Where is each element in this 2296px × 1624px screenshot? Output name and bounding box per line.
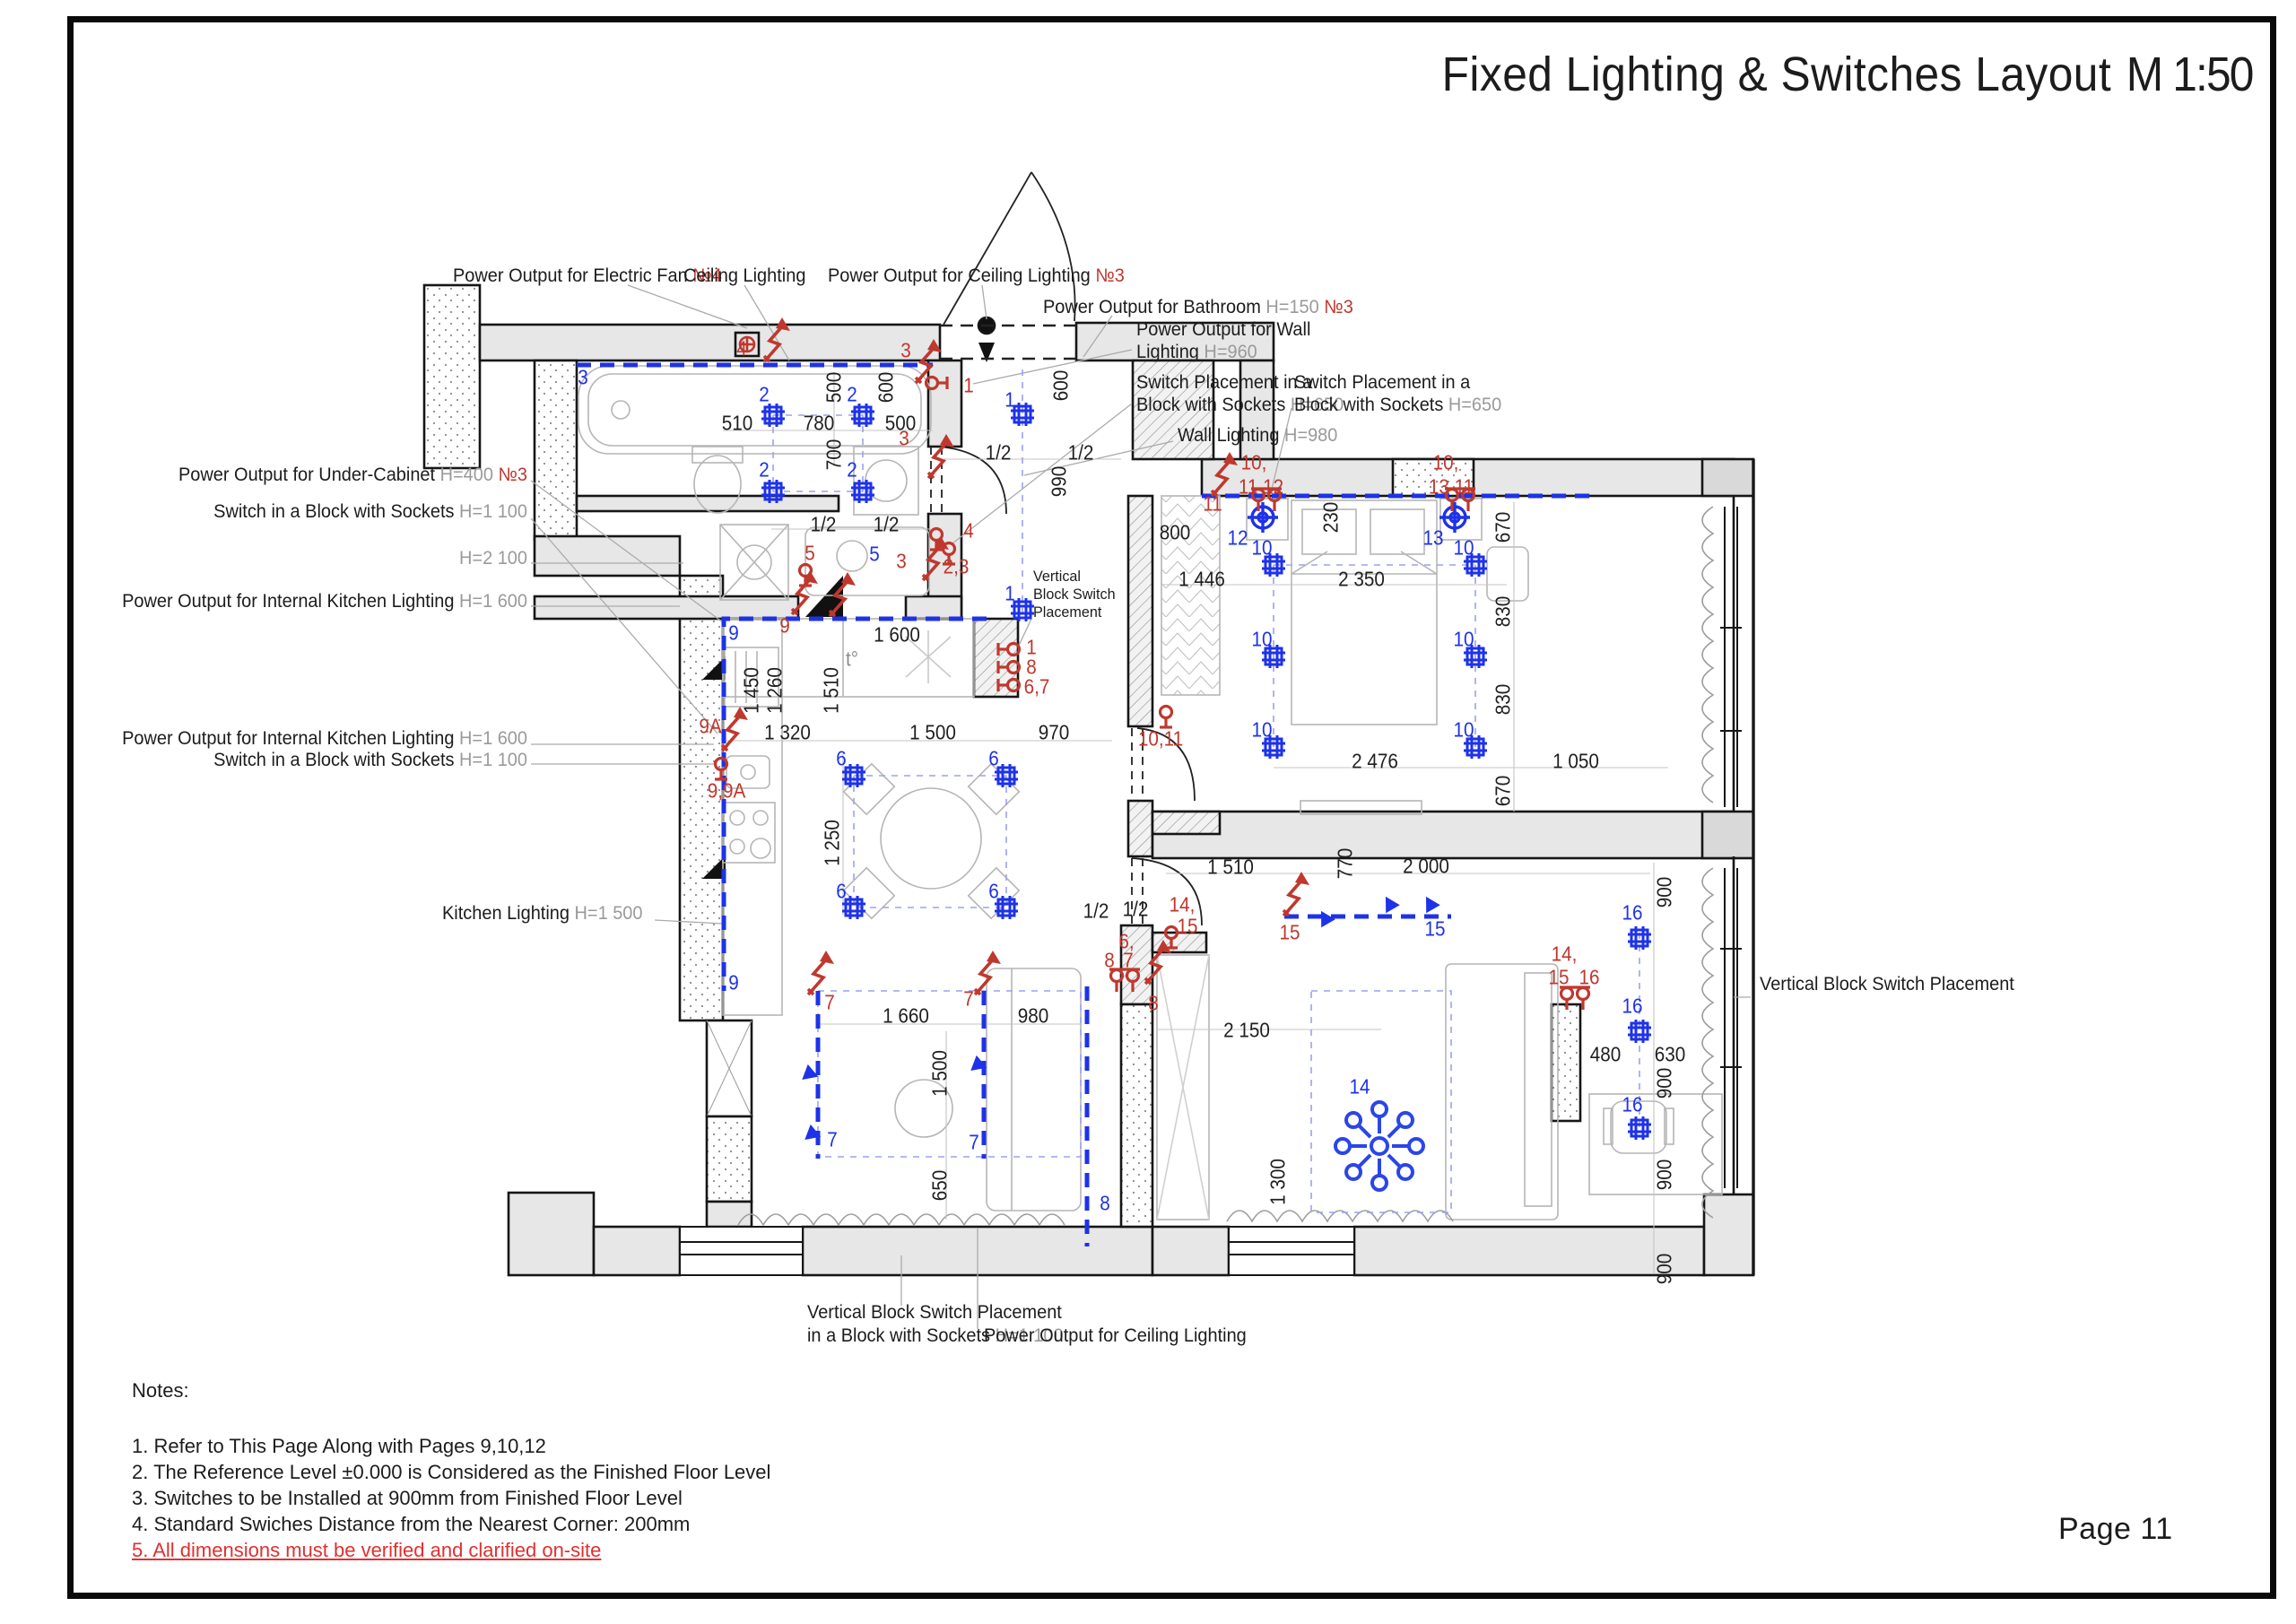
ceiling-light-icon [995, 896, 1018, 919]
note-item-3: 3. Switches to be Installed at 900mm fro… [132, 1485, 1011, 1511]
led-direction-icon [796, 1064, 818, 1086]
led-direction-icon [1419, 892, 1440, 913]
power-output-icon [808, 951, 834, 994]
notes-heading: Notes: [132, 1379, 1011, 1403]
note-item-5: 5. All dimensions must be verified and c… [132, 1537, 1011, 1563]
note-item-4: 4. Standard Swiches Distance from the Ne… [132, 1511, 1011, 1537]
led-direction-icon [1378, 892, 1400, 913]
ceiling-light-icon [1628, 1116, 1651, 1140]
sheet: Fixed Lighting & Switches LayoutM 1:50 [0, 0, 2296, 1624]
note-item-2: 2. The Reference Level ±0.000 is Conside… [132, 1459, 1011, 1485]
ceiling-light-icon [1628, 1020, 1651, 1043]
switch-icon [1160, 707, 1172, 728]
ceiling-light-icon [842, 896, 865, 919]
light-connector [818, 991, 1081, 1157]
chandelier-icon [1335, 1102, 1423, 1190]
power-output-icon [1283, 872, 1309, 916]
curtain-line [1702, 507, 1713, 803]
note-item-1: 1. Refer to This Page Along with Pages 9… [132, 1433, 1011, 1459]
curtain-line [1702, 868, 1713, 1218]
ceiling-light-icon [1011, 403, 1034, 426]
curtain-line [738, 1214, 1065, 1225]
notes-block: Notes: 1. Refer to This Page Along with … [132, 1379, 1011, 1563]
page-number: Page 11 [2058, 1512, 2173, 1547]
wall-sconce-icon [1439, 502, 1470, 533]
